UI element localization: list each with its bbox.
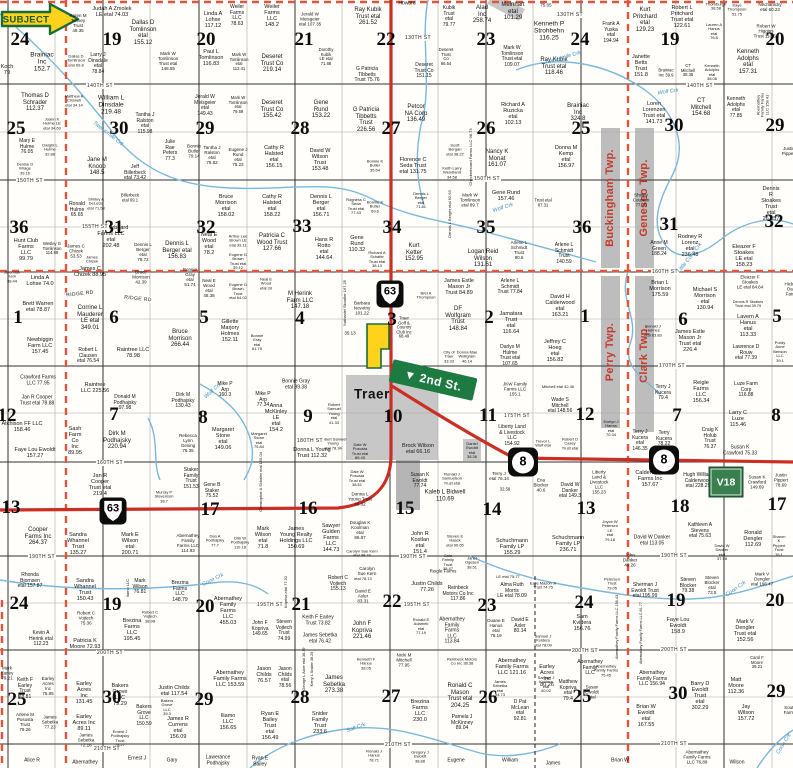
parcel-label: Sharon K Pippert Trust 76.1: [772, 535, 786, 557]
parcel-label: Jan R Cooper Trust etal 78.88: [20, 396, 55, 407]
parcel-label: Abernathey Family Farms LLC 114.93: [176, 534, 199, 554]
section-number: 28: [291, 687, 310, 709]
parcel-label: Jeff Billerbeck etal 73.42: [124, 165, 146, 182]
section-number: 14: [483, 499, 502, 521]
parcel-label: Mark E Wilson etal 200.71: [121, 532, 138, 556]
parcel-label: Alice R: [24, 758, 40, 764]
street-label: 190TH ST: [660, 553, 688, 559]
parcel-label: Dennis R Stoakes Trust etal 39.79: [733, 300, 763, 308]
parcel-label: Abernathey Family Farms 75.45: [594, 664, 618, 677]
parcel-label: Lawerance Podhajsky: [206, 756, 230, 767]
parcel-label: Tantha J Ralston etal 115.98: [136, 113, 155, 135]
parcel-label: James Sebetka 72.16: [78, 734, 95, 749]
parcel-label: Kopriva etal 77.32: [284, 576, 288, 608]
section-number: 8: [771, 405, 781, 427]
parcel-label: Mark Wilson etal 71.8: [255, 526, 272, 550]
parcel-label: Kathleen A Stevens etal 75.63: [688, 523, 712, 540]
parcel-label: Craig K Holub Trust 76.37: [702, 428, 719, 450]
parcel-label: Ray Kubik Trust etal 261.52: [354, 7, 381, 27]
parcel-label: Cathy R Halsted etal 156.15: [264, 145, 284, 169]
parcel-label: JKW Family Farms LLC 155.1: [503, 383, 527, 398]
section-number: 24: [11, 29, 30, 51]
county-route-number: 8: [508, 455, 538, 469]
parcel-label: Bruce Morrison 266.44: [168, 329, 191, 349]
section-number: 7: [672, 405, 682, 427]
parcel-label: Matt Moore 112.36: [728, 677, 744, 695]
parcel-label: Dennis L Berger etal 156.83: [162, 241, 191, 261]
parcel-label: Donna M Kemp etal 156.97: [555, 145, 577, 169]
parcel-label: Robert C Vojtech 75.36: [77, 612, 95, 627]
parcel-label: Logan Reid Wilson 131.61: [468, 249, 499, 269]
street-label: 150TH ST: [473, 176, 501, 182]
section-number: 13: [577, 498, 596, 520]
street-label: 195TH ST: [403, 602, 431, 608]
parcel-label: Snider Family Trust 233.6: [312, 711, 328, 735]
section-number: 17: [201, 499, 220, 521]
parcel-label: 32.58: [500, 488, 510, 493]
street-label: 210TH ST: [93, 746, 121, 752]
parcel-label: Christopher A Schafer etal 155.04: [259, 452, 263, 512]
section-number: 5: [772, 306, 782, 328]
parcel-label: Wesley G Tomlinson 114.88: [43, 242, 62, 256]
parcel-label: James Estle Mason Jr Trust 84.89: [444, 278, 474, 296]
parcel-label: James Sebetka etal 76.42: [303, 634, 337, 645]
parcel-label: Dale W Posusta Trust etal 38.61: [349, 470, 366, 488]
parcel-label: Sash Farm Co Inc 89.95: [68, 426, 82, 456]
parcel-label: Liberty Land & Livestock LLC 154.92: [498, 425, 526, 447]
section-number: 30: [665, 115, 684, 137]
parcel-label: Linda A Lohse 74.0: [26, 275, 53, 287]
parcel-label: Eugene J Rund etal 75.22: [228, 148, 247, 168]
parcel-label: Margaret Stone etal 75.84: [251, 432, 267, 450]
parcel-label: George L Axler etal 38.39: [302, 648, 306, 691]
parcel-label: Terry J Kucera 79.4: [655, 385, 671, 402]
parcel-label: Robert L Clausen etal 76.54: [77, 348, 99, 365]
section-number: 20: [197, 29, 216, 51]
parcel-label: David H Calderwood etal 163.21: [545, 294, 574, 318]
parcel-label: Kubik Trust etal 79.77: [443, 6, 456, 28]
section-number: 12: [576, 404, 595, 426]
section-number: 25: [573, 686, 592, 708]
parcel-label: Justin Pippert: [782, 147, 793, 157]
parcel-label: Mark V Dengler Trust etal 152.56: [734, 619, 757, 643]
parcel-label: Gene B Staker 75.52: [204, 483, 221, 500]
section-number: 20: [766, 590, 785, 612]
parcel-label: Barry D Ewoldt Trust etal 302.29: [691, 681, 710, 711]
parcel-label: Dwight L Hulme 32.88: [42, 143, 58, 156]
parcel-label: Weiler Farms LLC 148.2: [264, 4, 280, 28]
section-number: 19: [103, 29, 122, 51]
town-name-label: Traer: [354, 387, 390, 402]
parcel-label: David W Danker etal 113.05: [634, 536, 670, 547]
parcel-label: Ronald C Mason Trust etal 204.25: [447, 683, 472, 709]
parcel-label: Kenneth Adolphs etal 38.06: [705, 64, 720, 82]
parcel-label: Robert L Pritchard Trust etal 122.61: [671, 5, 694, 29]
parcel-label: Dallas D Tomlinson etal 69.8: [67, 54, 85, 67]
parcel-label: Crawford Farms LLC 77.95: [20, 376, 56, 387]
parcel-label: Alma Ruth Morris LE etal 78.09: [497, 583, 526, 600]
section-number: 26: [479, 687, 498, 709]
parcel-label: Bonnie Gray etal 51.74: [183, 268, 197, 288]
section-number: 35: [477, 217, 496, 239]
parcel-label: Deseret Trust Co 219.14: [261, 54, 284, 74]
section-number: 27: [382, 118, 401, 140]
parcel-label: Evelyn J Harms etal 70.34: [603, 420, 618, 438]
parcel-label: Weiler Farms LLC 78.63: [230, 5, 244, 27]
parcel-label: James C Chizek 88.95: [74, 266, 106, 278]
parcel-label: Sam Kvidera 156.76: [573, 614, 592, 632]
parcel-label: Michael S Morrison etal 130.94: [693, 287, 717, 311]
parcel-label: Eugene G Brown Trust etal 39.12: [229, 253, 247, 271]
parcel-label: Ronald J Samuelson Trust etal: [442, 472, 462, 485]
parcel-label: Thornburgh 38.58: [706, 3, 727, 12]
parcel-label: Deseret Trust Co 151.15: [415, 63, 434, 80]
parcel-label: Patricia C Wood Trust 127.66: [257, 233, 288, 253]
street-label: 160TH ST: [651, 269, 679, 275]
section-number: 27: [382, 686, 401, 708]
parcel-label: Tantha J Ralston etal 78.82: [203, 146, 220, 166]
parcel-label: Donna Mae Wolfgram 46.14: [457, 350, 478, 363]
parcel-label: Mark W Tomlinson etal 89.7: [460, 194, 480, 209]
parcel-label: Judah A Zmolek LE etal 74.03: [92, 6, 131, 18]
section-number: 23: [477, 29, 496, 51]
parcel-label: Terry J Kucera etal 146.35: [632, 430, 648, 452]
parcel-label: Reigle Farms LLC 156.34: [693, 380, 710, 404]
parcel-label: Ernest J: [128, 756, 146, 762]
parcel-label: Earley Acres Inc 131.45: [76, 681, 93, 705]
parcel-label: Sandra Whannel Trust 135.27: [67, 532, 89, 556]
parcel-label: Steven Vojtech Trust 74.99: [276, 620, 292, 642]
parcel-label: Trust etal 87.31: [534, 198, 551, 207]
parcel-label: Douglas K Koolman etal 86.87: [350, 521, 371, 541]
section-number: 24: [575, 592, 594, 614]
us63-shield: 63: [100, 498, 127, 525]
parcel-label: Petersen Trust 79.05: [604, 577, 620, 590]
township-label: Buckingham Twp.: [604, 149, 616, 247]
parcel-label: Abernathey Family Farms LLC 81.77: [639, 602, 643, 664]
parcel-label: Mark Earley 79.21: [1, 667, 14, 682]
us63-shield-number: 63: [377, 286, 404, 298]
parcel-label: James R Currens etal 156.09: [167, 716, 189, 740]
us63-shield-number: 63: [100, 503, 127, 515]
parcel-label: Mark W Tomlinson Trust etal 109.07: [501, 46, 524, 68]
parcel-label: James Sebetka 273.38: [323, 675, 345, 695]
parcel-label: Jamatara Trust etal 116.64: [500, 311, 523, 335]
parcel-label: DF Wolfgram Trust 148.84: [445, 306, 471, 332]
parcel-label: Earley Acres Inc 75.85: [42, 677, 55, 697]
parcel-label: Samuel J Kvidera etal 40.02: [538, 676, 555, 694]
parcel-label: CT Mitchell 38.35: [681, 64, 695, 78]
street-label: 155TH ST: [81, 224, 109, 230]
parcel-label: Jerald W Meisgeier etal 107.35: [299, 13, 321, 28]
parcel-label: Bruce Morrison 42.39: [132, 271, 150, 286]
section-number: 16: [299, 498, 318, 520]
section-number: 32: [197, 217, 216, 239]
parcel-label: Kaleb L Bidwell 110.69: [425, 489, 466, 502]
parcel-label: Eleazer F Stoakes LE etal 158.23: [732, 244, 756, 268]
section-number: 22: [377, 29, 396, 51]
parcel-label: Anne M Green 188.24: [650, 241, 667, 258]
parcel-label: Thomas D Schrader 112.37: [21, 93, 49, 113]
parcel-label: David W Wilson Trust 153.48: [310, 148, 331, 172]
parcel-label: Arthur Lee Brown LE etal 39.11: [229, 234, 248, 247]
section-number: 4: [295, 308, 305, 330]
parcel-label: Sherman J Ewoldt Trust etal 195.99: [631, 583, 659, 600]
parcel-label: John Danker 49.26: [623, 554, 638, 569]
parcel-label: Estle Mason Jr Trust 74.75: [530, 582, 556, 591]
street-label: 170TH ST: [658, 363, 686, 369]
section-number: 25: [572, 118, 591, 140]
street-label: 200TH ST: [571, 648, 599, 654]
parcel-label: CT Mitchell 154.68: [691, 98, 711, 118]
parcel-label: Robert C Vojtech 155.13: [328, 576, 348, 593]
parcel-label: Neal E Wood etal 48.38: [202, 279, 216, 299]
parcel-label: Brock Wilson etal 66.16: [402, 443, 434, 455]
parcel-label: Matthew A Criswell etal 34.14: [65, 94, 84, 107]
parcel-label: G Patricia Tibbetts Trust 75.76: [354, 67, 379, 84]
county-route-8-shield: 8: [649, 446, 679, 475]
parcel-label: City of Traer 33.33: [443, 350, 454, 363]
street-label: 140TH ST: [86, 83, 114, 89]
parcel-label: D Pat McLean etal 92.81: [511, 700, 529, 722]
parcel-label: James Young Realty Holdings LLC 150.69: [279, 526, 312, 550]
section-number: 25: [7, 118, 26, 140]
section-number: 34: [383, 217, 402, 239]
parcel-label: Florence C Seda Trust etal 131.75: [399, 157, 426, 175]
parcel-label: Steven Blocker etal 73.5: [704, 576, 719, 596]
parcel-label: Lauren A Hanus etal 76.6: [706, 23, 722, 41]
parcel-label: Darlys M Hulme Trust etal 107.65: [500, 345, 521, 367]
parcel-label: South Farms: [784, 706, 793, 716]
parcel-label: John R Kostlan etal 151.4: [411, 531, 429, 555]
parcel-label: Deseret Trust Co 155.42: [261, 100, 284, 120]
section-number: 19: [661, 29, 680, 51]
parcel-label: Kenneth F Hanus 38.05: [357, 657, 375, 670]
parcel-label: Eugene G Brown Trust etal 64.02: [229, 283, 247, 301]
township-label: Perry Twp.: [604, 323, 616, 381]
parcel-label: LE etal 75.77: [496, 575, 520, 579]
parcel-label: Wade S Mitchell etal 148.56: [548, 398, 573, 415]
section-number: 31: [660, 214, 679, 236]
parcel-label: Bakers Grove LLC 39.3: [161, 699, 173, 717]
parcel-label: Bonnie K Butler 69.6: [367, 200, 383, 213]
parcel-label: Howard: [398, 1, 415, 7]
parcel-label: Nancy K Monat 161.07: [486, 149, 509, 169]
parcel-label: James C Chizek 53.53: [67, 245, 85, 260]
section-number: 18: [671, 496, 690, 518]
us63-shield: 63: [377, 281, 404, 308]
parcel-label: Gillette Marjory Holmes 152.11: [221, 319, 240, 343]
parcel-label: Petcor NA Corp 136.49: [405, 104, 428, 124]
parcel-label: Lavern A Hanus etal 113.33: [737, 314, 759, 338]
parcel-label: Jeremiah Kern 38.44: [4, 270, 20, 283]
parcel-label: Brainiac Inc 152.7: [30, 51, 53, 72]
parcel-label: John F Kopriva 221.46: [352, 621, 372, 641]
parcel-label: Bonnie Gray etal 61.79: [251, 334, 263, 352]
parcel-label: Pamela J McKinney 89.04: [451, 715, 473, 732]
parcel-label: Ilamo LLC: [126, 579, 130, 597]
street-label: 140TH ST: [686, 83, 714, 89]
parcel-label: Keith F Earley Trust 73.82: [302, 616, 333, 627]
parcel-label: Jason Childs 76.57: [256, 666, 271, 684]
parcel-label: Reigle Farms: [430, 570, 457, 575]
parcel-label: Dirk M Podhajsky 130.43: [171, 393, 194, 410]
parcel-label: Richard A Ruzicka etal 102.13: [501, 102, 525, 126]
parcel-label: Arlene L Schmidt Trust 77.84: [497, 279, 522, 296]
parcel-label: Abernathey Family Farms LLC 156.43: [615, 595, 619, 659]
parcel-label: Hans R Rotto etal 144.64: [315, 237, 333, 261]
parcel-label: Jerald W Meisgeier etal 149.43: [194, 95, 216, 117]
parcel-label: Mary E Hulme 76.05: [19, 139, 35, 156]
section-number: 29: [196, 118, 215, 140]
parcel-label: 35.13: [344, 332, 355, 337]
section-number: 29: [195, 689, 214, 711]
parcel-label: Janette Betts Trust 151.8: [632, 54, 650, 78]
parcel-label: Ryan E Bailey: [252, 757, 268, 768]
parcel-label: Barbara Novotny 101.22: [354, 302, 371, 317]
section-number: 24: [10, 593, 29, 615]
parcel-label: Dennis L Berger etal 156.71: [310, 194, 332, 218]
parcel-label: Schuchmann Family LP 155.29: [496, 538, 528, 556]
parcel-label: Meinhart etal 101.29: [501, 2, 524, 22]
parcel-label: Brian W: [611, 758, 629, 764]
section-number: 3: [387, 309, 397, 331]
parcel-label: Dorothy Kubik LE etal 71.88: [319, 48, 334, 66]
street-label: 150TH ST: [16, 178, 44, 184]
parcel-label: G Patricia Tibbetts Trust 226.56: [353, 107, 379, 133]
parcel-label: Mark V Dengler etal 196.47: [751, 573, 773, 588]
parcel-label: Jan R Cooper Trust etal 219.4: [89, 473, 112, 497]
parcel-label: Murray P Stevenson 38.7: [155, 490, 174, 503]
parcel-label: Robert C Vojtech 38.98: [142, 610, 158, 623]
parcel-label: Kenneth P Strohbehn 116.25: [534, 20, 564, 41]
parcel-label: Eugene: [447, 758, 464, 764]
section-number: 30: [103, 687, 122, 709]
parcel-label: Eleazer F Stoakes LE etal 84.64: [737, 276, 764, 291]
parcel-label: Paul L Tomlinson 116.83: [199, 49, 224, 67]
parcel-label: Justin Childs 77.26: [411, 581, 442, 593]
parcel-label: Neal E Wood etal 39: [260, 277, 272, 290]
parcel-label: William: [502, 758, 518, 764]
parcel-label: Janet Ogesen 38.51: [465, 556, 479, 569]
parcel-label: Abernathey: [72, 760, 98, 766]
parcel-label: Jane M Knoop 148.5: [87, 157, 107, 177]
parcel-label: Traer Golf & Country Club Inc 68.49: [396, 316, 411, 339]
parcel-label: Rogness C Seda Trust etal 77.43: [346, 198, 366, 216]
parcel-label: Abernathey Family Farms LLC 113.84: [439, 617, 465, 645]
section-number: 36: [10, 217, 29, 239]
parcel-label: Larry C Luze 115.46: [729, 410, 747, 428]
parcel-label: Jay Wilson 157.72: [738, 704, 755, 722]
parcel-label: Bakers Grove LLC 150.59: [136, 705, 152, 727]
parcel-label: Reinbeck Motors Co Inc 117.86: [442, 586, 473, 603]
section-number: 24: [571, 29, 590, 51]
parcel-label: Mark W Tomlinson Trust etal 148.55: [158, 52, 178, 72]
parcel-label: Patricia K Moore 72.93: [70, 638, 101, 650]
parcel-label: Justin Pippert 78.69: [774, 474, 788, 489]
section-number: 22: [383, 591, 402, 613]
street-label: 160TH ST: [96, 460, 124, 466]
parcel-label: Bruce Morrison etal 158.02: [215, 194, 236, 218]
parcel-label: Brian W Ewoldt etal 167.55: [636, 704, 656, 728]
parcel-label: Brainiac Inc 39.9: [658, 68, 673, 77]
parcel-label: Dan A Podhajsky 77.7: [206, 534, 224, 547]
parcel-label: Donald J Helmes etal 83.83: [644, 324, 662, 337]
parcel-label: Richard A Schafer Trust etal 38.13: [368, 251, 385, 269]
parcel-label: Billerbeck etal 69.1: [121, 193, 139, 202]
parcel-label: David E Axler 83.31: [355, 590, 371, 605]
parcel-label: Gene Rund 157.46: [492, 190, 520, 202]
section-number: 29: [767, 681, 786, 703]
parcel-label: Iliamo LLC 156.65: [220, 713, 237, 731]
parcel-label: Bonnie Butler 79.14: [187, 145, 201, 160]
parcel-label: Dennis L Berger etal 71.81: [413, 192, 429, 210]
parcel-label: David W Danker etal 37.98: [714, 544, 729, 562]
parcel-label: Luze Farm Corp 116.88: [734, 382, 758, 399]
section-number: 12: [0, 405, 17, 427]
parcel-label: Nicki M Mitchell 77.95: [396, 654, 411, 669]
parcel-label: Reinbeck Motors Co Inc 38.38: [447, 658, 477, 667]
parcel-label: Larry J Dinsdale etal 78.84: [88, 53, 107, 75]
street-label: 175TH ST: [503, 413, 531, 419]
street-label: 200TH ST: [96, 650, 124, 656]
parcel-label: Cathy R Halsted etal 158.22: [262, 194, 282, 218]
section-number: 1: [13, 307, 23, 329]
parcel-label: Newbiggin Farm LLC 157.45: [27, 337, 53, 355]
section-number: 2: [484, 307, 494, 329]
parcel-label: Ronald Hulme 65.65: [69, 202, 85, 219]
parcel-label: Anna McKinley LE etal 154.2: [265, 403, 287, 433]
parcel-label: Margaret Stone etal 149.06: [212, 427, 234, 451]
parcel-label: Julie Rae Peters 77.3: [163, 140, 177, 162]
parcel-label: Loren Lorenzen Trust etal 141.73: [643, 101, 666, 125]
section-number: 23: [478, 595, 497, 617]
parcel-label: Steven E Haack etal 90.65: [446, 534, 464, 547]
parcel-label: James Sebetka 77.23: [42, 716, 59, 731]
parcel-label: Arlene L Schmidt Trust 140.59: [555, 243, 574, 265]
section-number: 21: [292, 594, 311, 616]
parcel-label: Linda A Lohse 117.12: [204, 11, 222, 29]
parcel-label: Lawrence D Rouw etal 77.39: [733, 345, 760, 362]
subject-parcel: [367, 324, 389, 368]
parcel-label: Carolyn Sue Kern etal 38.74: [346, 550, 378, 559]
section-number: 19: [103, 594, 122, 616]
parcel-label: Dirk M Podhajsky 220.94: [103, 431, 131, 451]
section-number: 20: [766, 29, 785, 51]
parcel-label: Trevor L Wulf etal: [535, 440, 551, 449]
parcel-label: Kevin A Herink etal 112.23: [29, 631, 53, 648]
street-label: 180TH ST: [296, 438, 324, 444]
section-number: 9: [303, 406, 313, 428]
parcel-label: Hickory Oaks Farms: [784, 283, 793, 298]
section-number: 19: [667, 590, 686, 612]
v18-route-sign: V18: [709, 467, 744, 498]
section-number: 29: [766, 115, 785, 137]
parcel-label: Raintree LLC 225.56: [81, 382, 109, 394]
parcel-label: Abernathey Family Farms LLC 76.89: [683, 751, 710, 766]
county-route-8-shield: 8: [508, 448, 538, 477]
parcel-label: Kaye Thompson 51.75: [728, 3, 747, 16]
parcel-label: Samuel J Kvidera etal 78.09: [534, 634, 552, 647]
parcel-label: Mark W Tomlinson etal 112.41: [230, 53, 249, 71]
parcel-label: Dale W Posusta Trust etal 86.45: [352, 443, 369, 461]
parcel-label: James: [546, 761, 561, 767]
parcel-label: Brian L Morrison 175.59: [649, 280, 670, 298]
parcel-label: Justin Childs etal 117.54: [158, 685, 189, 697]
section-number: 13: [2, 497, 21, 519]
parcel-label: Staker Family Trust 151.53: [183, 468, 198, 490]
section-number: 15: [396, 498, 415, 520]
